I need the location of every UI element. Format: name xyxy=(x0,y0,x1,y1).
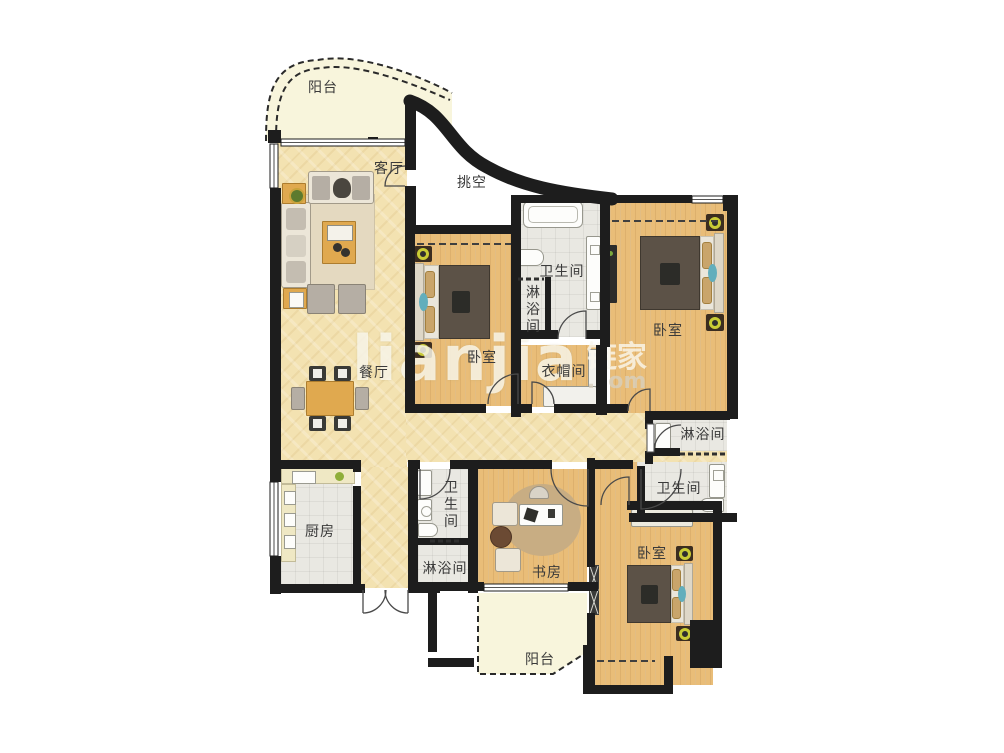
lamp-icon xyxy=(679,628,691,640)
room-label-bathroom-small: 卫生间 xyxy=(440,480,460,531)
lamp-icon xyxy=(709,217,721,229)
armchair xyxy=(338,284,366,314)
room-label-shower-top: 淋浴间 xyxy=(522,285,542,336)
room-label-study: 书房 xyxy=(532,562,562,582)
desk-chair xyxy=(529,486,549,499)
room-label-dining: 餐厅 xyxy=(359,362,389,382)
room-label-bedroom-left: 卧室 xyxy=(467,347,497,367)
nightstand xyxy=(676,626,693,641)
dining-chair xyxy=(309,416,326,431)
bed xyxy=(640,233,724,313)
dining-chair xyxy=(355,387,369,410)
bathtub xyxy=(523,201,583,228)
tv-cabinet xyxy=(605,245,617,303)
nightstand xyxy=(706,314,724,331)
shower-tray xyxy=(655,423,671,450)
kitchen-counter xyxy=(281,484,296,562)
washing-machine xyxy=(417,499,432,521)
dining-chair xyxy=(334,366,351,381)
room-label-living: 客厅 xyxy=(374,158,404,178)
coffee-table xyxy=(322,221,356,264)
room-label-bathroom-right: 卫生间 xyxy=(657,478,702,498)
study-desk xyxy=(519,504,563,526)
sofa-chaise xyxy=(281,202,311,288)
kitchen-counter xyxy=(281,467,355,484)
side-table-plant xyxy=(282,183,306,204)
nightstand xyxy=(414,246,432,262)
room-label-bathroom-top: 卫生间 xyxy=(540,261,585,281)
room-label-shower-right: 淋浴间 xyxy=(681,424,726,444)
round-side-table xyxy=(490,526,512,548)
floor-plan: lianjia 链家 .com xyxy=(0,0,1004,753)
room-label-kitchen: 厨房 xyxy=(305,521,335,541)
wardrobe xyxy=(588,349,599,387)
bathroom-vanity xyxy=(586,236,601,310)
study-armchair xyxy=(495,548,521,572)
room-label-cloakroom: 衣帽间 xyxy=(542,361,587,381)
sofa-three-seat xyxy=(308,171,374,204)
room-label-void: 挑空 xyxy=(457,172,487,192)
bed xyxy=(414,263,490,341)
room-label-shower-small: 淋浴间 xyxy=(423,558,468,578)
nightstand xyxy=(414,342,432,358)
nightstand xyxy=(706,214,724,231)
study-armchair xyxy=(492,502,518,526)
bed xyxy=(627,563,693,625)
wardrobe xyxy=(543,386,597,407)
lamp-icon xyxy=(709,317,721,329)
lamp-icon xyxy=(679,548,691,560)
room-label-bedroom-bottom: 卧室 xyxy=(637,543,667,563)
room-label-bedroom-tr: 卧室 xyxy=(653,320,683,340)
toilet xyxy=(700,498,724,512)
dining-table xyxy=(306,381,354,416)
armchair xyxy=(307,284,335,314)
lamp-icon xyxy=(417,248,429,260)
bathroom-vanity xyxy=(709,464,725,498)
room-label-balcony-bottom: 阳台 xyxy=(525,649,555,669)
toilet xyxy=(418,523,438,537)
side-table xyxy=(283,288,307,309)
dining-chair xyxy=(291,387,305,410)
nightstand xyxy=(676,546,693,561)
lamp-icon xyxy=(417,344,429,356)
curved-wall xyxy=(410,101,612,199)
dining-chair xyxy=(309,366,326,381)
window-x-panel xyxy=(589,565,599,615)
washbasin xyxy=(417,470,432,496)
room-label-balcony-top: 阳台 xyxy=(308,77,338,97)
entry-hall-floor xyxy=(361,467,408,588)
closet xyxy=(631,509,693,527)
dining-chair xyxy=(334,416,351,431)
balcony-bench xyxy=(504,620,568,650)
